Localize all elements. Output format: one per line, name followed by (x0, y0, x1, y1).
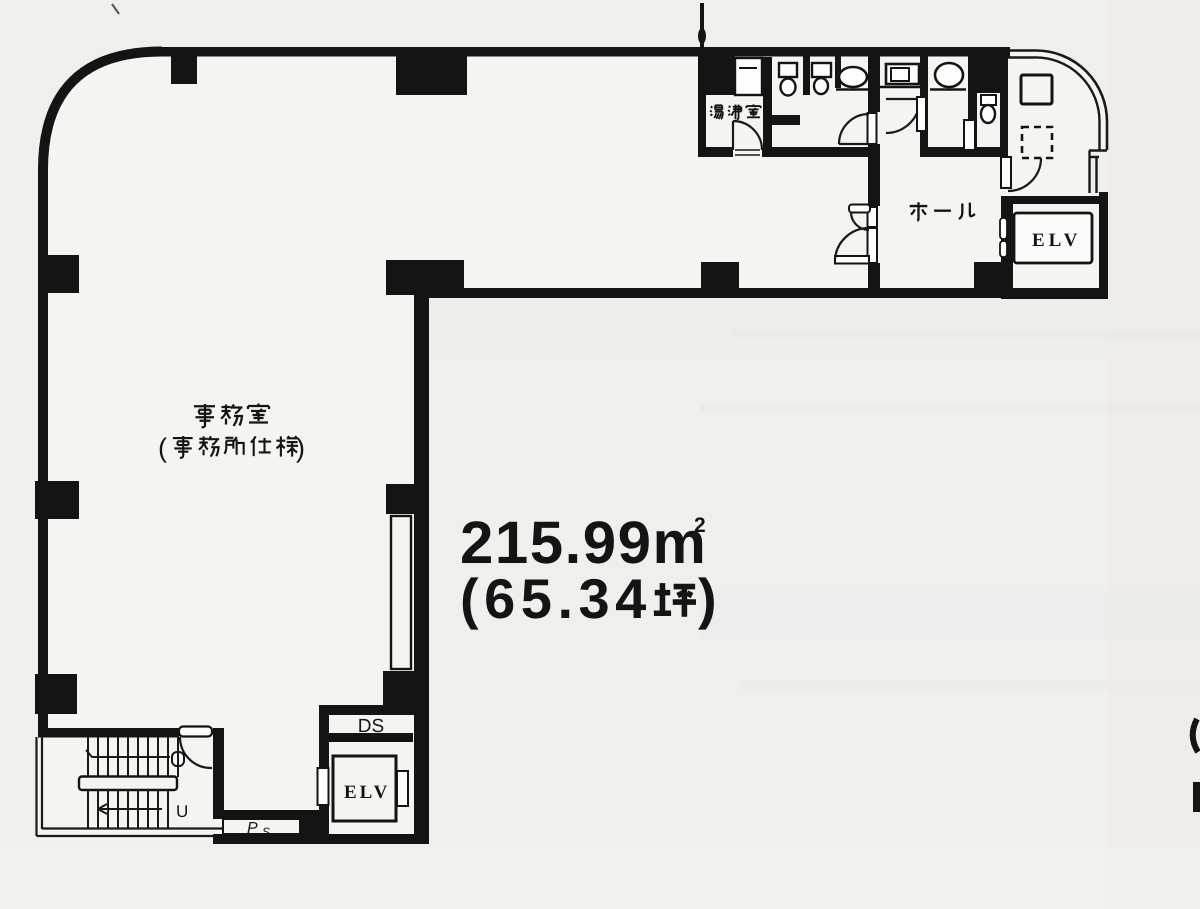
svg-text:(: ( (158, 433, 167, 463)
svg-text:(65.34: (65.34 (460, 567, 652, 630)
svg-text:ELV: ELV (1032, 230, 1081, 251)
svg-text:U: U (176, 802, 188, 821)
svg-text:): ) (296, 433, 305, 463)
svg-text:2: 2 (694, 514, 706, 537)
svg-text:215.99m: 215.99m (460, 509, 707, 576)
svg-text:): ) (698, 567, 717, 630)
svg-text:ELV: ELV (344, 782, 390, 803)
